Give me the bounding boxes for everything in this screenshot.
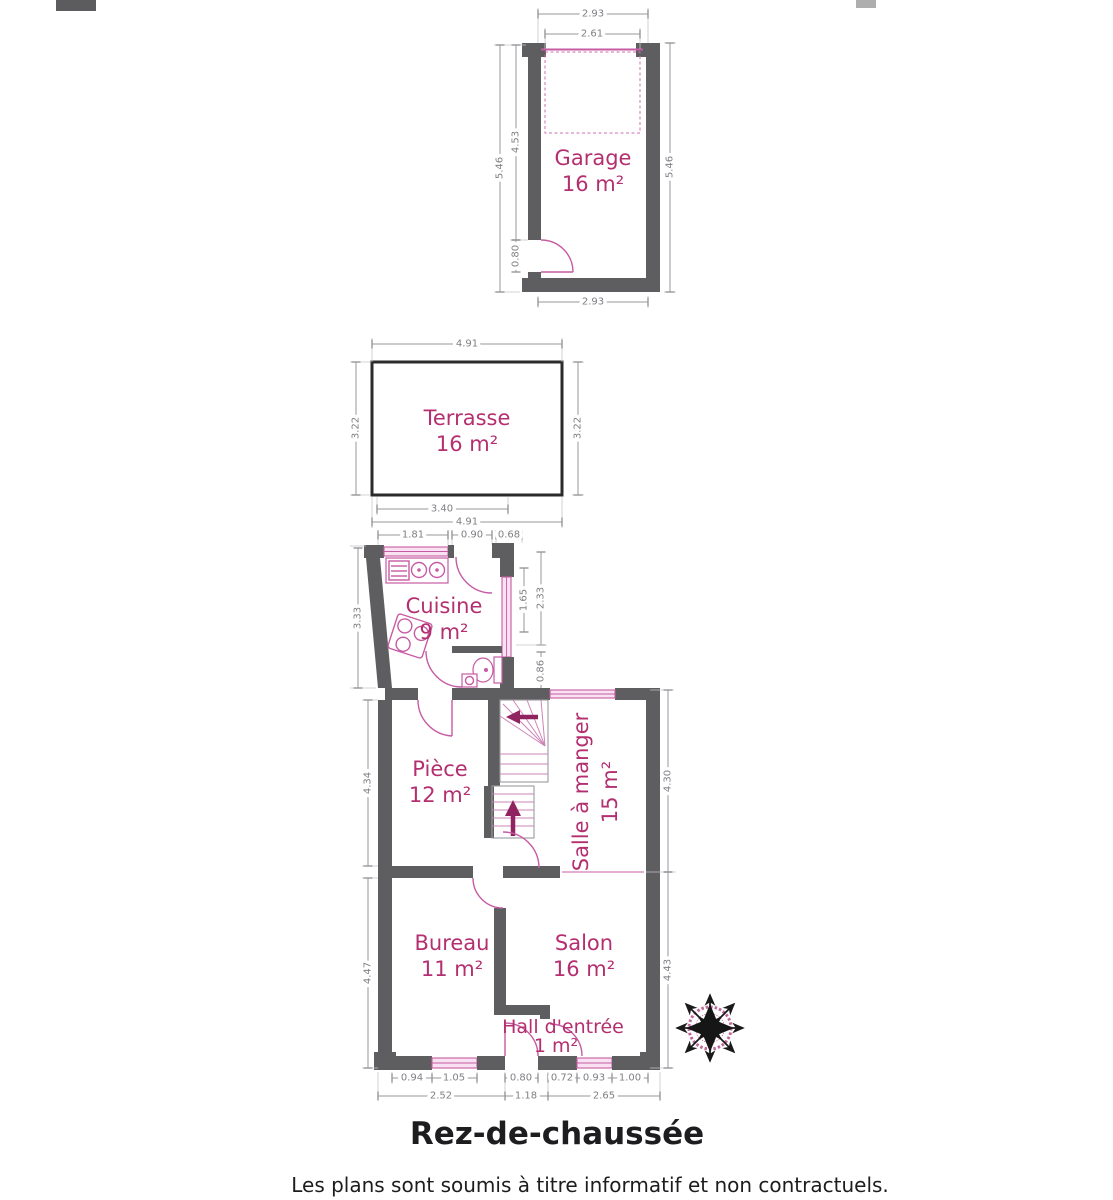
dim-cuisine-left: 3.33	[353, 607, 364, 629]
toilet-dot	[484, 668, 488, 672]
dim-bottom-6: 1.00	[619, 1073, 641, 1084]
bureau-label: Bureau	[415, 931, 490, 955]
toilet-tank-icon	[494, 657, 502, 683]
dim-garage-right: 5.46	[665, 156, 676, 178]
dim-cuisine-window: 1.65	[519, 589, 530, 611]
dim-garage-top-inner: 2.61	[581, 29, 603, 40]
salle-a-manger-area: 15 m²	[598, 761, 622, 823]
dim-terrasse-bottom-inner: 3.40	[431, 504, 453, 515]
kitchen-counter	[386, 558, 448, 583]
floor-plan-canvas: Garage 16 m² 2.93 2.61 5.46 4.53 0.80 5.…	[0, 0, 1113, 1200]
garage-label: Garage	[555, 146, 632, 170]
salon-label: Salon	[555, 931, 613, 955]
dim-garage-bottom: 2.93	[582, 297, 604, 308]
wc-door-arc	[426, 651, 462, 687]
garage-door-top	[541, 50, 643, 134]
dim-garage-left: 5.46	[495, 157, 506, 179]
piece-area: 12 m²	[409, 783, 471, 807]
dim-garage-door: 0.80	[511, 245, 522, 267]
dim-bureau-left: 4.47	[363, 962, 374, 984]
dim-salle-right: 4.30	[663, 770, 674, 792]
dim-bottom-4: 0.72	[551, 1073, 573, 1084]
dim-bottom-5: 0.93	[583, 1073, 605, 1084]
cuisine-piece-door	[418, 700, 452, 736]
dim-cuisine-top-1: 1.81	[402, 530, 424, 541]
salle-a-manger-label: Salle à manger	[569, 712, 593, 871]
dim-garage-top: 2.93	[582, 9, 604, 20]
dim-bottom-1: 0.94	[401, 1073, 423, 1084]
disclaimer-text: Les plans sont soumis à titre informatif…	[291, 1173, 889, 1197]
dim-bottom-total-3: 2.65	[593, 1091, 615, 1102]
dim-terrasse-bottom: 4.91	[456, 517, 478, 528]
floor-plan-page: Garage 16 m² 2.93 2.61 5.46 4.53 0.80 5.…	[0, 0, 1113, 1200]
dim-cuisine-top-2: 0.90	[461, 530, 483, 541]
garage-side-door	[541, 240, 573, 272]
hall-area: 1 m²	[534, 1035, 578, 1057]
dim-salon-right: 4.43	[663, 959, 674, 981]
scan-artifacts	[56, 0, 876, 11]
dim-garage-left-inner: 4.53	[511, 131, 522, 153]
dim-bottom-3: 0.80	[510, 1073, 532, 1084]
divider-wall	[494, 908, 506, 1005]
main-walls	[374, 688, 660, 1070]
terrasse-area: 16 m²	[436, 432, 498, 456]
garage-plan: Garage 16 m² 2.93 2.61 5.46 4.53 0.80 5.…	[494, 8, 676, 308]
staircase	[484, 700, 548, 868]
dim-bottom-total-2: 1.18	[515, 1091, 537, 1102]
salon-area: 16 m²	[553, 957, 615, 981]
ground-floor-plan: 1.81 0.90 0.68	[350, 530, 676, 1102]
right-wall	[646, 688, 660, 1070]
piece-label: Pièce	[412, 757, 467, 781]
compass-rose-icon	[677, 995, 743, 1061]
dim-terrasse-left: 3.22	[351, 417, 362, 439]
bureau-door-arc	[473, 878, 503, 908]
terrasse-label: Terrasse	[423, 406, 511, 430]
dim-terrasse-top: 4.91	[456, 339, 478, 350]
bottom-dimensions: 0.94 1.05 0.80 0.72 0.93 1.00 2.52 1.18 …	[378, 1072, 660, 1102]
wc-fixtures	[462, 657, 502, 687]
bureau-area: 11 m²	[421, 957, 483, 981]
terrace-door-arc	[456, 557, 492, 593]
cuisine-label: Cuisine	[406, 594, 483, 618]
dim-cuisine-right: 2.33	[536, 587, 547, 609]
dim-bottom-total-1: 2.52	[430, 1091, 452, 1102]
page-title: Rez-de-chaussée	[410, 1116, 704, 1152]
terrasse-plan: Terrasse 16 m² 4.91 3.22 3.22 3.40 4.91	[350, 338, 584, 528]
dim-bottom-2: 1.05	[443, 1073, 465, 1084]
garage-area: 16 m²	[562, 172, 624, 196]
dim-terrasse-right: 3.22	[573, 417, 584, 439]
cuisine-area: 9 m²	[420, 620, 469, 644]
dim-piece-left: 4.34	[363, 772, 374, 794]
dim-wc-right: 0.86	[536, 660, 547, 682]
dim-cuisine-top-3: 0.68	[498, 530, 520, 541]
